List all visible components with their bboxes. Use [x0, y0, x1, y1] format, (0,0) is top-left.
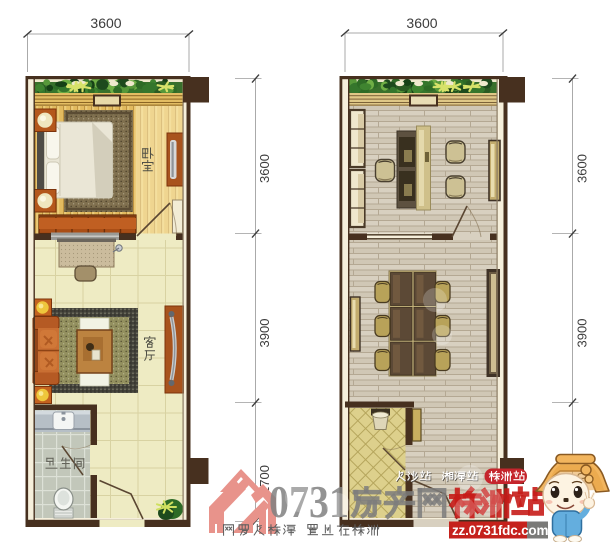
svg-text:3900: 3900	[575, 319, 590, 348]
svg-text:3600: 3600	[257, 154, 272, 183]
svg-text:3900: 3900	[257, 319, 272, 348]
svg-text:3600: 3600	[90, 15, 121, 31]
svg-text:3600: 3600	[575, 154, 590, 183]
svg-text:3600: 3600	[406, 15, 437, 31]
svg-text:zz.0731fdc.com: zz.0731fdc.com	[452, 523, 548, 538]
